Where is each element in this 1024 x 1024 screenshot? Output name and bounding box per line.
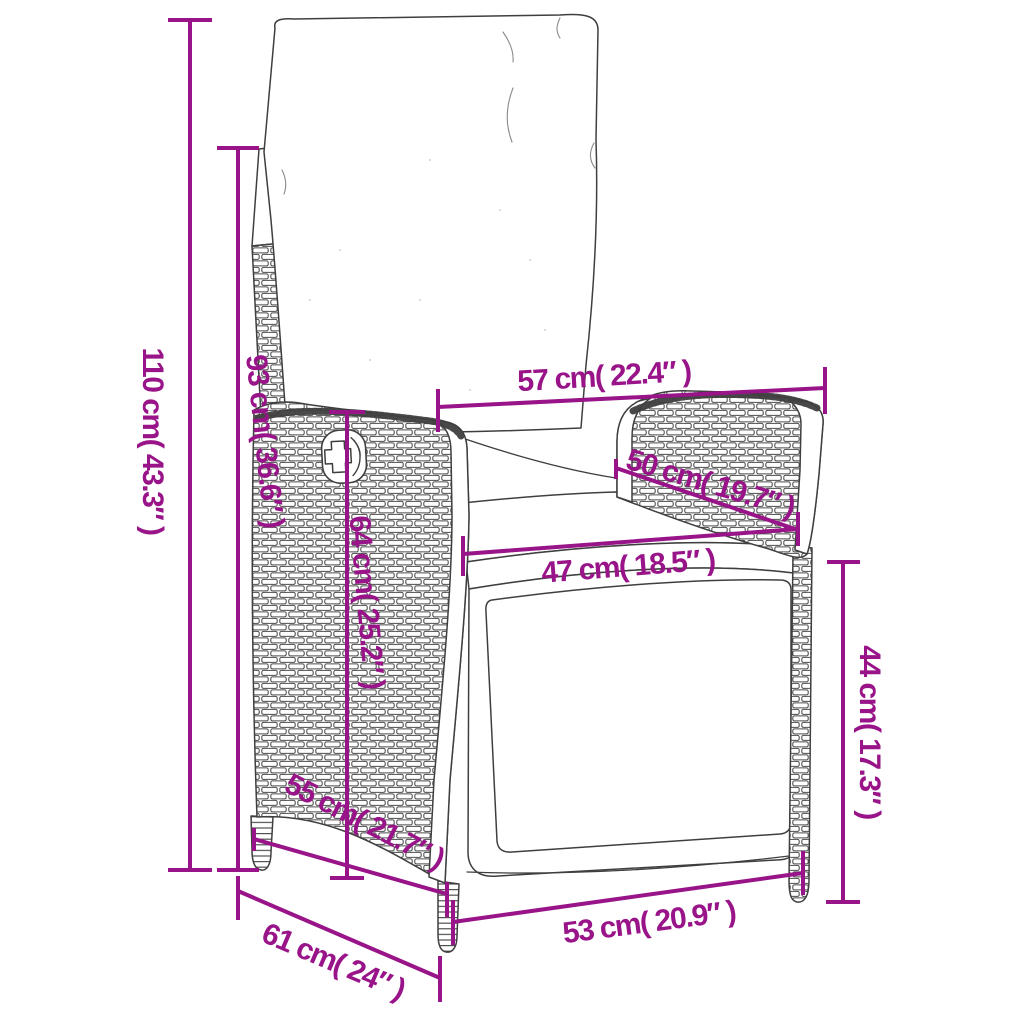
cushion-seat-fold bbox=[445, 432, 616, 478]
right-frame-post bbox=[789, 545, 812, 902]
recline-knob bbox=[321, 429, 368, 484]
dim-line-total-height bbox=[168, 20, 212, 870]
dim-label-armrest-height: 44 cm( 17.3″ ) bbox=[852, 645, 886, 818]
dim-label-total-height: 110 cm( 43.3″ ) bbox=[135, 347, 169, 534]
base-front-panel bbox=[467, 568, 801, 876]
product-dimension-diagram: 110 cm( 43.3″ ) 93 cm( 36.6″ ) 57 cm( 22… bbox=[0, 0, 1024, 1024]
